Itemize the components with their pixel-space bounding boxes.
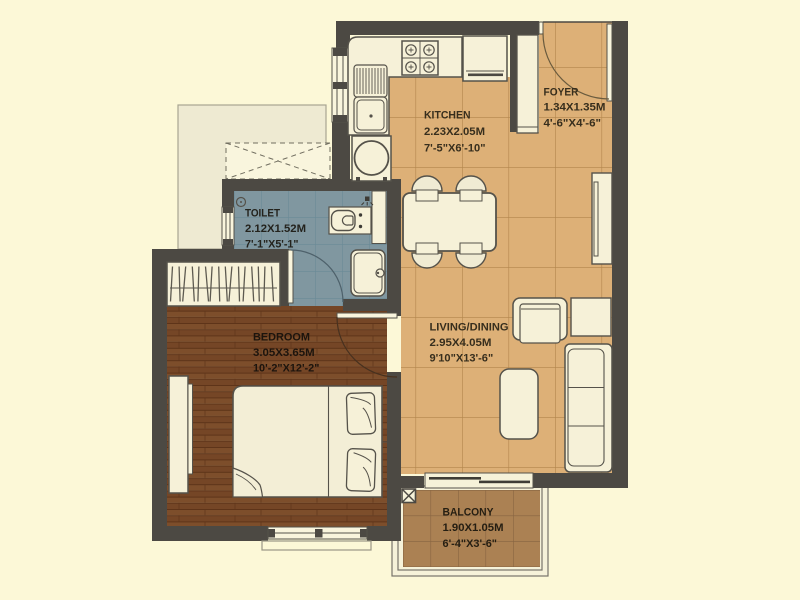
svg-text:4'-6"X4'-6": 4'-6"X4'-6" <box>544 118 602 130</box>
svg-text:6'-4"X3'-6": 6'-4"X3'-6" <box>443 538 498 550</box>
svg-text:7'-1"X5'-1": 7'-1"X5'-1" <box>245 239 299 251</box>
svg-text:10'-2"X12'-2": 10'-2"X12'-2" <box>253 363 319 375</box>
svg-text:2.95X4.05M: 2.95X4.05M <box>430 337 492 349</box>
svg-text:KITCHEN: KITCHEN <box>424 110 471 122</box>
svg-text:BALCONY: BALCONY <box>443 507 495 519</box>
svg-text:TOILET: TOILET <box>245 208 280 220</box>
svg-text:9'10"X13'-6": 9'10"X13'-6" <box>430 353 494 365</box>
svg-text:FOYER: FOYER <box>544 87 579 99</box>
svg-text:1.90X1.05M: 1.90X1.05M <box>443 522 504 534</box>
svg-text:BEDROOM: BEDROOM <box>253 332 310 344</box>
svg-text:2.23X2.05M: 2.23X2.05M <box>424 126 485 138</box>
svg-text:1.34X1.35M: 1.34X1.35M <box>544 102 606 114</box>
svg-text:7'-5"X6'-10": 7'-5"X6'-10" <box>424 143 486 155</box>
svg-text:LIVING/DINING: LIVING/DINING <box>430 322 509 334</box>
svg-text:3.05X3.65M: 3.05X3.65M <box>253 347 315 359</box>
svg-text:2.12X1.52M: 2.12X1.52M <box>245 223 306 235</box>
